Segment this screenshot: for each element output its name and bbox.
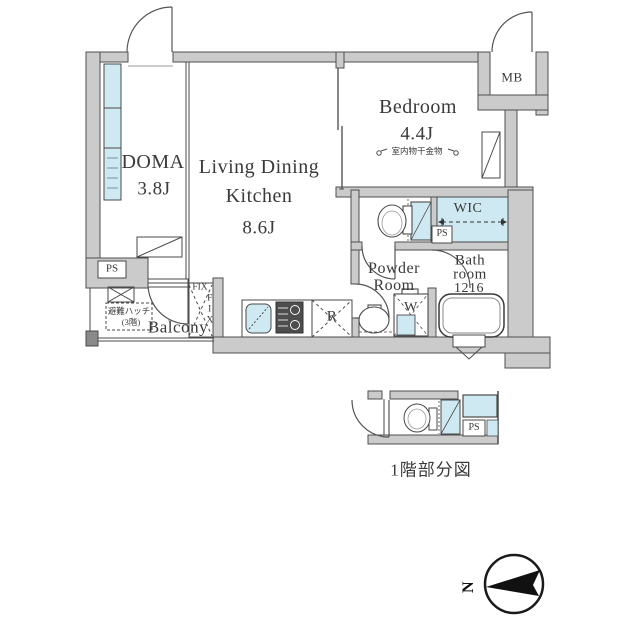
wall-segment — [351, 190, 359, 284]
bathtub — [439, 294, 504, 337]
ps-label-wic: PS — [436, 229, 447, 239]
floor-plan-page: DOMA 3.8J Living Dining Kitchen 8.6J Bed… — [0, 0, 640, 639]
wall-segment — [213, 337, 550, 353]
wic-label: WIC — [454, 202, 483, 216]
toilet-main — [378, 199, 431, 241]
ps-label-detail: PS — [468, 423, 479, 433]
mb-label: MB — [501, 71, 522, 84]
detail-caption: 1階部分図 — [390, 462, 472, 479]
wall-segment — [336, 187, 533, 197]
detail-toilet-bowl-inner — [408, 409, 426, 429]
wall-segment — [336, 52, 344, 68]
ldk-name-line1: Living Dining — [199, 157, 319, 177]
ldk-size: 8.6J — [242, 219, 275, 238]
bath-vent — [453, 335, 485, 359]
north-label: N — [461, 581, 477, 593]
balcony-door-frame — [148, 279, 188, 287]
doma-size: 3.8J — [137, 180, 170, 199]
fridge-label: R — [327, 310, 338, 325]
bathroom-size: 1216 — [454, 282, 484, 296]
bedroom-drying-note: 室内物干金物 — [391, 147, 442, 156]
compass — [485, 555, 543, 613]
floor-plan-drawing — [0, 0, 640, 639]
stove — [276, 302, 303, 333]
wall-segment — [505, 353, 550, 368]
balcony-drain-block — [86, 331, 98, 346]
entrance-door-arc — [127, 7, 172, 52]
detail-door-arc — [352, 400, 389, 437]
ps-label-entrance: PS — [106, 264, 118, 275]
powder-room-line1: Powder — [368, 261, 420, 277]
wall-segment — [478, 95, 548, 110]
wall-segment — [390, 391, 458, 399]
washbasin — [359, 307, 389, 333]
washer-pan — [397, 315, 415, 335]
fix-label-horizontal: FIX — [192, 283, 207, 293]
bedroom-size: 4.4J — [400, 125, 433, 144]
wall-segment — [428, 288, 436, 337]
detail-closet-blue — [463, 395, 497, 417]
sliding-door-bedroom — [336, 68, 344, 189]
wall-segment — [86, 52, 100, 262]
evacuation-hatch-label: 避難ハッチ — [108, 307, 151, 316]
detail-figure — [352, 391, 498, 444]
doma-name: DOMA — [121, 152, 184, 172]
wall-segment — [173, 52, 478, 62]
wall-segment — [351, 242, 362, 250]
evacuation-hatch-floor: (3階) — [122, 318, 140, 327]
ldk-name-line2: Kitchen — [226, 186, 293, 206]
wall-segment — [508, 190, 533, 340]
toilet-bowl-inner — [382, 211, 402, 235]
doma-window-strip — [104, 64, 121, 200]
mb-door-arc — [492, 12, 532, 52]
balcony-label: Balcony — [148, 319, 208, 336]
wall-segment — [368, 391, 382, 399]
windows — [104, 64, 121, 200]
powder-room-line2: Room — [373, 278, 414, 294]
wall-segment — [505, 110, 517, 190]
detail-blue-sliver — [487, 420, 498, 436]
washer-label: W — [404, 301, 418, 315]
kitchen-counter — [242, 300, 313, 337]
bedroom-name: Bedroom — [379, 97, 457, 117]
